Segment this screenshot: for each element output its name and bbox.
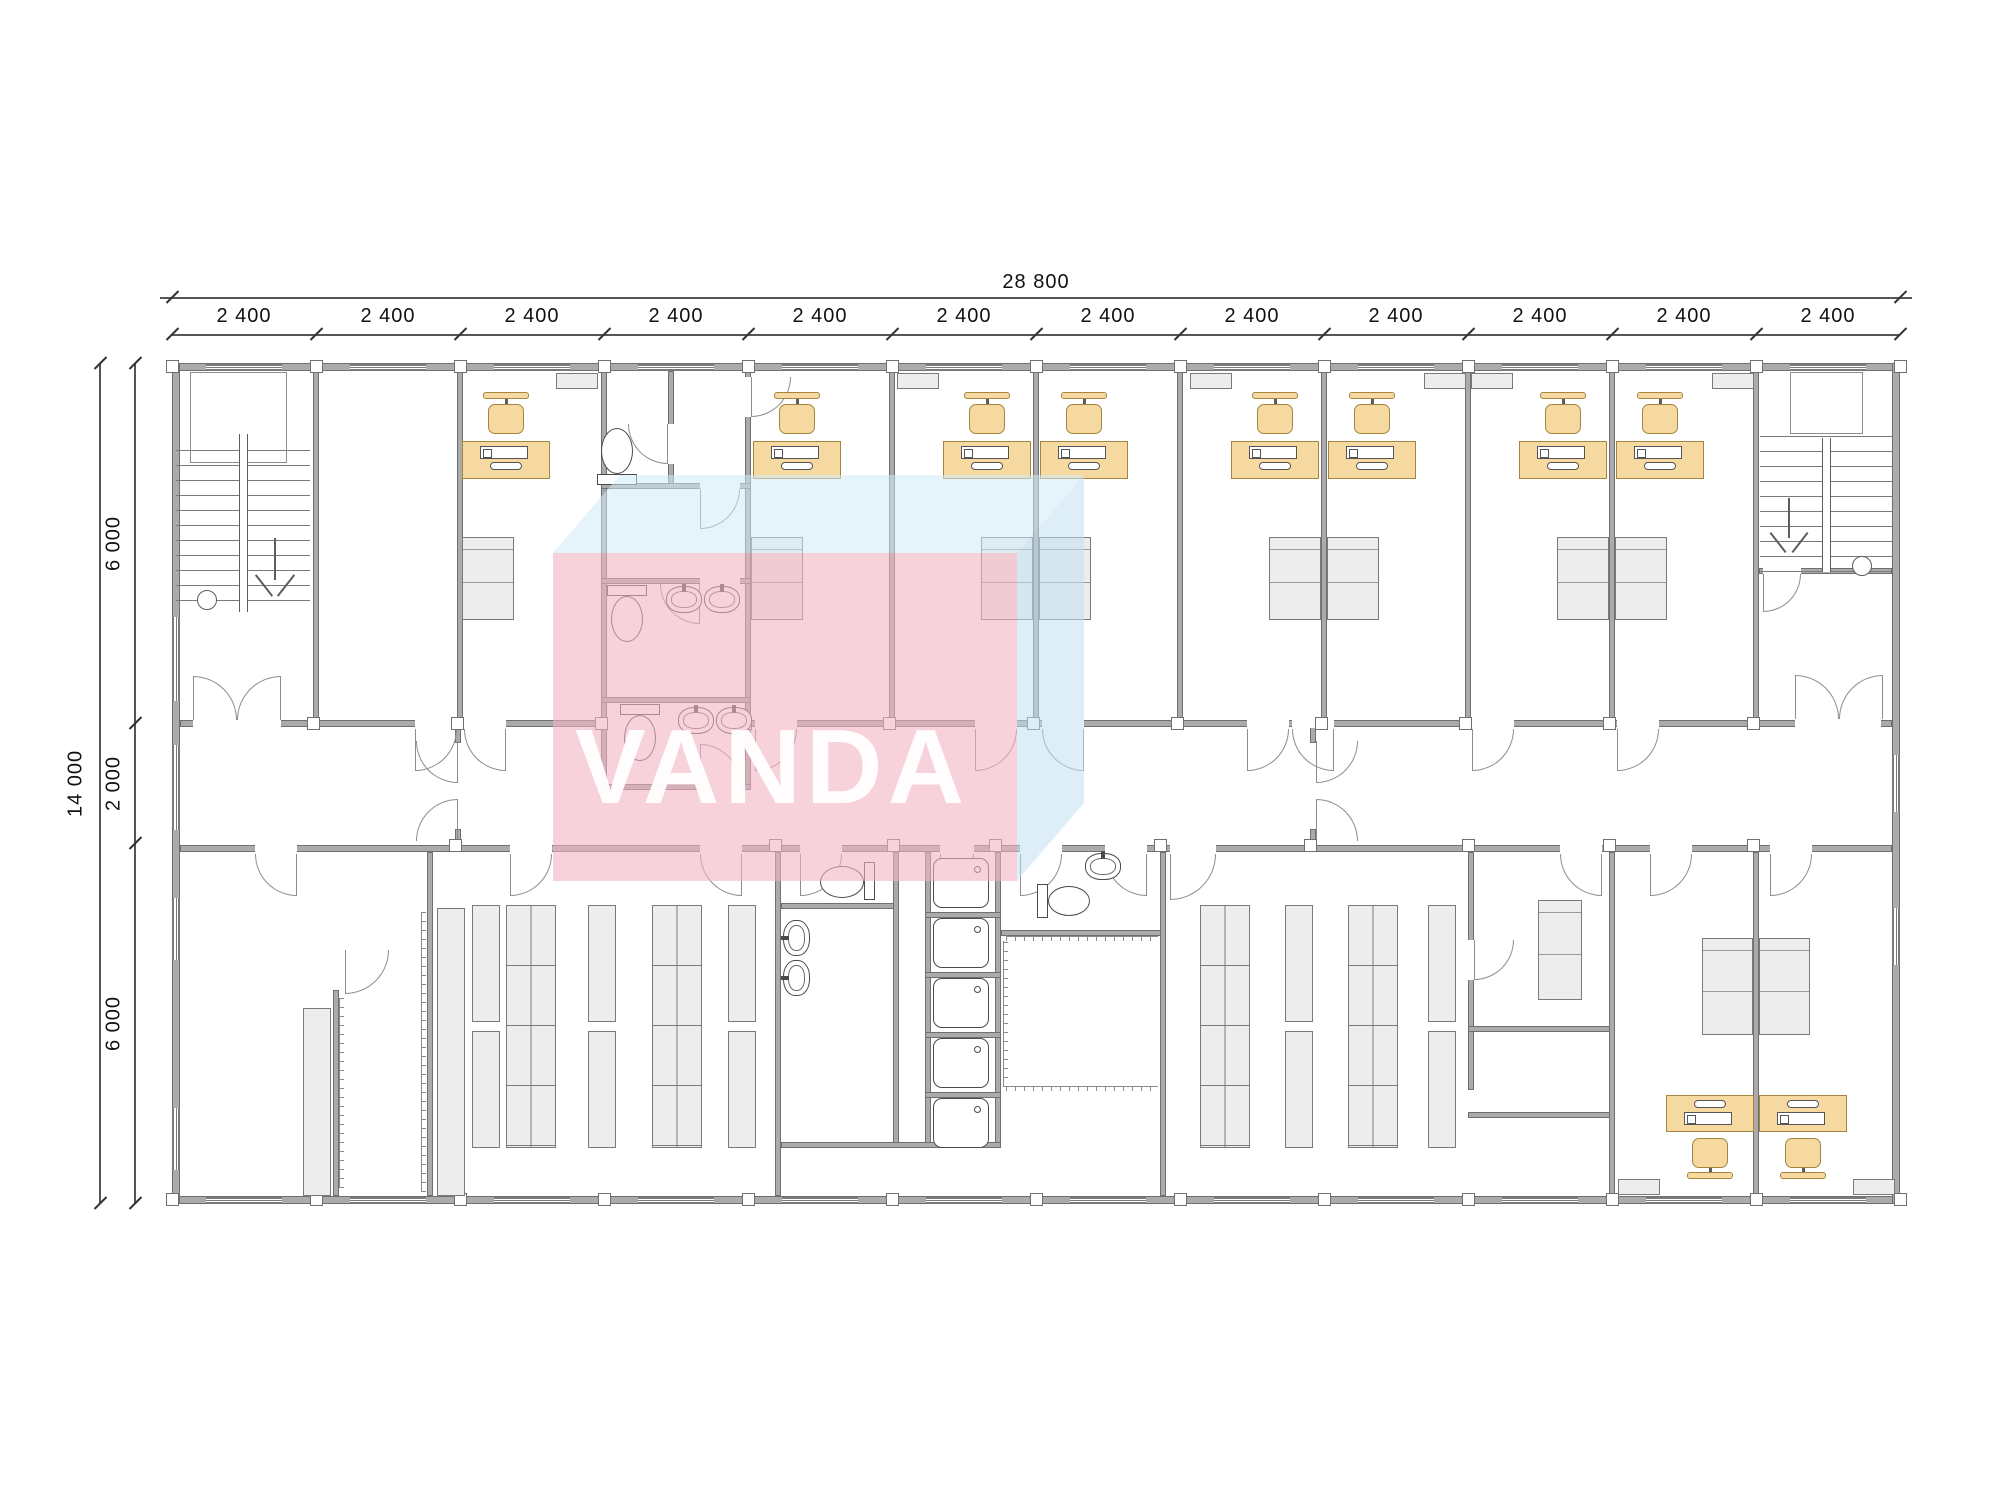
window xyxy=(1502,1197,1578,1204)
door-arc xyxy=(193,676,237,720)
wall-post xyxy=(451,717,464,730)
door-arc xyxy=(1316,799,1358,841)
wall xyxy=(1468,1112,1612,1118)
dimension-label: 2 400 xyxy=(1180,304,1324,328)
shelving-unit xyxy=(1200,905,1250,1148)
window xyxy=(638,364,714,371)
office-chair xyxy=(1642,404,1678,434)
dimension-label: 2 400 xyxy=(604,304,748,328)
desk-computer-icon xyxy=(1777,1112,1825,1125)
keyboard-icon xyxy=(1694,1100,1726,1108)
wall-post xyxy=(1603,839,1616,852)
wall-post xyxy=(1894,1193,1907,1206)
desk-computer-icon xyxy=(1249,446,1297,459)
window xyxy=(1358,364,1434,371)
wall xyxy=(1160,852,1166,1196)
office-chair-back xyxy=(964,392,1010,399)
desk-computer-icon xyxy=(1058,446,1106,459)
wall-post xyxy=(1304,839,1317,852)
wall-post xyxy=(598,360,611,373)
desk-computer-icon xyxy=(480,446,528,459)
wall-post xyxy=(166,1193,179,1206)
shower-tray-icon xyxy=(933,978,989,1028)
office-chair-back xyxy=(483,392,529,399)
stair-start-circle xyxy=(197,590,217,610)
wardrobe-icon xyxy=(1615,537,1667,620)
window xyxy=(926,364,1002,371)
wall xyxy=(1468,1026,1612,1032)
keyboard-icon xyxy=(1356,462,1388,470)
shower-tray-icon xyxy=(933,1098,989,1148)
window xyxy=(1646,1197,1722,1204)
office-chair xyxy=(1257,404,1293,434)
dimension-label-total-width: 28 800 xyxy=(160,270,1912,294)
wall-post xyxy=(1459,717,1472,730)
door-arc xyxy=(1770,854,1812,896)
radiator-icon xyxy=(1853,1179,1895,1195)
door-arc xyxy=(1763,574,1801,612)
wardrobe-icon xyxy=(1557,537,1609,620)
hatch-wall xyxy=(421,912,426,1192)
radiator-icon xyxy=(1618,1179,1660,1195)
wall xyxy=(1609,852,1615,1196)
dimension-label-total-height: 14 000 xyxy=(62,363,90,1203)
door-arc xyxy=(1316,741,1358,783)
radiator-icon xyxy=(1712,373,1754,389)
wall-post xyxy=(1462,839,1475,852)
shelving-unit xyxy=(728,1031,756,1148)
window xyxy=(1214,364,1290,371)
dimension-label-height-segment: 2 000 xyxy=(100,723,128,843)
wall-post xyxy=(1750,1193,1763,1206)
stair-arrow xyxy=(274,538,276,580)
door-opening xyxy=(255,844,297,853)
dimension-label: 2 400 xyxy=(1756,304,1900,328)
office-chair xyxy=(1692,1138,1728,1168)
radiator-icon xyxy=(556,373,598,389)
watermark-top-face xyxy=(553,475,1084,553)
wall-post xyxy=(1894,360,1907,373)
floor-plan-canvas: VANDA 28 800 14 000 6 000 2 000 6 000 2 … xyxy=(0,0,2000,1500)
dimension-label: 2 400 xyxy=(892,304,1036,328)
wall-post xyxy=(310,360,323,373)
door-opening xyxy=(1472,719,1514,728)
shelving-unit xyxy=(1348,905,1398,1148)
keyboard-icon xyxy=(1787,1100,1819,1108)
shelving-unit xyxy=(472,905,500,1022)
dimension-label: 2 400 xyxy=(172,304,316,328)
door-arc xyxy=(1560,854,1602,896)
office-chair xyxy=(969,404,1005,434)
wall-post xyxy=(1030,360,1043,373)
dimension-label: 2 400 xyxy=(1036,304,1180,328)
keyboard-icon xyxy=(1259,462,1291,470)
window xyxy=(350,1197,426,1204)
window xyxy=(1790,364,1866,371)
door-opening xyxy=(668,424,674,464)
door-arc xyxy=(255,854,297,896)
toilet-bowl xyxy=(601,428,633,474)
door-arc xyxy=(1474,940,1514,980)
wall-post xyxy=(1462,1193,1475,1206)
desk-computer-icon xyxy=(1537,446,1585,459)
desk-computer-icon xyxy=(961,446,1009,459)
dimension-label: 2 400 xyxy=(1612,304,1756,328)
wall xyxy=(1753,371,1759,720)
wall xyxy=(893,852,899,1148)
window xyxy=(926,1197,1002,1204)
sink-icon xyxy=(1085,853,1121,880)
wall-post xyxy=(886,360,899,373)
keyboard-icon xyxy=(1068,462,1100,470)
door-opening xyxy=(1247,719,1289,728)
office-chair xyxy=(1354,404,1390,434)
door-opening xyxy=(1770,844,1812,853)
office-chair-back xyxy=(1540,392,1586,399)
dimension-label: 2 400 xyxy=(460,304,604,328)
office-chair-back xyxy=(1061,392,1107,399)
window xyxy=(1070,1197,1146,1204)
dimension-label-height-segment: 6 000 xyxy=(100,843,128,1203)
door-opening xyxy=(1105,844,1147,853)
radiator-icon xyxy=(1190,373,1232,389)
wall-post xyxy=(1462,360,1475,373)
wall-post xyxy=(1174,1193,1187,1206)
wardrobe-icon xyxy=(1327,537,1379,620)
door-arc xyxy=(416,799,458,841)
door-opening xyxy=(1560,844,1602,853)
keyboard-icon xyxy=(490,462,522,470)
keyboard-icon xyxy=(971,462,1003,470)
hatch-wall xyxy=(1003,941,1008,1087)
door-opening xyxy=(1617,719,1659,728)
wall-post xyxy=(1315,717,1328,730)
window xyxy=(172,1108,180,1170)
wall-post xyxy=(1318,360,1331,373)
wall-post xyxy=(1603,717,1616,730)
window xyxy=(638,1197,714,1204)
door-arc xyxy=(1247,729,1289,771)
wall-post xyxy=(1747,839,1760,852)
radiator-icon xyxy=(1424,373,1466,389)
office-chair-back xyxy=(1687,1172,1733,1179)
door-arc xyxy=(1170,854,1216,900)
wall xyxy=(1177,371,1183,720)
sink-icon xyxy=(783,920,810,956)
stair-start-circle xyxy=(1852,556,1872,576)
dimension-line xyxy=(160,297,1912,299)
wardrobe-icon xyxy=(1538,900,1582,1000)
dimension-label-height-segment: 6 000 xyxy=(100,363,128,723)
door-opening xyxy=(1795,719,1881,728)
wall xyxy=(995,852,1001,1148)
window xyxy=(782,364,858,371)
office-chair-back xyxy=(1780,1172,1826,1179)
shelving-unit xyxy=(728,905,756,1022)
dimension-label: 2 400 xyxy=(1468,304,1612,328)
office-chair xyxy=(1545,404,1581,434)
office-chair-back xyxy=(774,392,820,399)
door-arc xyxy=(237,676,281,720)
shower-tray-icon xyxy=(933,1038,989,1088)
window xyxy=(172,745,180,830)
door-arc xyxy=(416,741,458,783)
office-chair-back xyxy=(1637,392,1683,399)
watermark: VANDA xyxy=(486,473,1088,887)
shelving-unit xyxy=(1428,905,1456,1022)
wall xyxy=(313,371,319,720)
window xyxy=(206,1197,282,1204)
stair-landing xyxy=(1790,372,1863,434)
office-chair-back xyxy=(1349,392,1395,399)
shelving-unit xyxy=(1428,1031,1456,1148)
toilet-bowl xyxy=(1048,886,1090,916)
dimension-label: 2 400 xyxy=(1324,304,1468,328)
wall-post xyxy=(1318,1193,1331,1206)
door-arc xyxy=(1795,675,1839,719)
window xyxy=(782,1197,858,1204)
shelving-unit xyxy=(1285,905,1313,1022)
wall-post xyxy=(1174,360,1187,373)
toilet-tank xyxy=(1037,884,1048,918)
shelving-unit xyxy=(472,1031,500,1148)
wall-post xyxy=(598,1193,611,1206)
dimension-line xyxy=(99,363,101,1203)
keyboard-icon xyxy=(1644,462,1676,470)
window xyxy=(350,364,426,371)
door-arc xyxy=(628,424,668,464)
shelf xyxy=(437,908,465,1196)
door-opening xyxy=(193,719,281,728)
door-opening xyxy=(1170,844,1216,853)
window xyxy=(1790,1197,1866,1204)
window xyxy=(1214,1197,1290,1204)
office-chair xyxy=(779,404,815,434)
sink-icon xyxy=(783,960,810,996)
door-arc xyxy=(345,950,389,994)
shelving-unit xyxy=(1285,1031,1313,1148)
window xyxy=(1892,755,1900,812)
stair-rail xyxy=(1822,438,1831,572)
wardrobe-icon xyxy=(1759,938,1810,1035)
window xyxy=(1070,364,1146,371)
wall-post xyxy=(1171,717,1184,730)
window xyxy=(494,1197,570,1204)
dimension-line xyxy=(134,363,136,1203)
desk-computer-icon xyxy=(1346,446,1394,459)
window xyxy=(1358,1197,1434,1204)
window xyxy=(172,617,180,701)
shelf xyxy=(303,1008,331,1196)
dimension-label: 2 400 xyxy=(748,304,892,328)
wall-post xyxy=(1030,1193,1043,1206)
desk-computer-icon xyxy=(771,446,819,459)
window xyxy=(494,364,570,371)
wall-post xyxy=(449,839,462,852)
radiator-icon xyxy=(1471,373,1513,389)
wall xyxy=(427,852,433,1196)
wall-post xyxy=(1747,717,1760,730)
hatch-wall xyxy=(1006,1086,1158,1091)
wall-post xyxy=(1606,360,1619,373)
window xyxy=(1892,908,1900,965)
office-chair xyxy=(488,404,524,434)
stair-arrow xyxy=(1788,498,1790,538)
door-arc xyxy=(1839,675,1883,719)
shower-tray-icon xyxy=(933,918,989,968)
wall-post xyxy=(742,1193,755,1206)
window xyxy=(1502,364,1578,371)
window xyxy=(206,364,282,371)
desk-computer-icon xyxy=(1634,446,1682,459)
wall-post xyxy=(166,360,179,373)
wall xyxy=(781,903,899,909)
wardrobe-icon xyxy=(1702,938,1753,1035)
keyboard-icon xyxy=(781,462,813,470)
wall-post xyxy=(1154,839,1167,852)
dimension-label: 2 400 xyxy=(316,304,460,328)
stair-rail xyxy=(239,434,248,612)
wall-post xyxy=(1750,360,1763,373)
wall xyxy=(925,852,931,1148)
shelving-unit xyxy=(588,905,616,1022)
shelving-unit xyxy=(652,905,702,1148)
door-opening xyxy=(1650,844,1692,853)
shelving-unit xyxy=(506,905,556,1148)
shelving-unit xyxy=(588,1031,616,1148)
door-arc xyxy=(1650,854,1692,896)
office-chair xyxy=(1785,1138,1821,1168)
window xyxy=(172,898,180,960)
door-arc xyxy=(1472,729,1514,771)
wardrobe-icon xyxy=(1269,537,1321,620)
hatch-wall xyxy=(1006,936,1158,941)
wall xyxy=(1465,371,1471,720)
keyboard-icon xyxy=(1547,462,1579,470)
office-chair xyxy=(1066,404,1102,434)
hatch-wall xyxy=(339,998,344,1188)
radiator-icon xyxy=(897,373,939,389)
window xyxy=(1646,364,1722,371)
door-arc xyxy=(1617,729,1659,771)
desk-computer-icon xyxy=(1684,1112,1732,1125)
wall-post xyxy=(742,360,755,373)
watermark-text: VANDA xyxy=(575,708,969,826)
wall-post xyxy=(307,717,320,730)
wall-post xyxy=(886,1193,899,1206)
wall-post xyxy=(454,360,467,373)
office-chair-back xyxy=(1252,392,1298,399)
